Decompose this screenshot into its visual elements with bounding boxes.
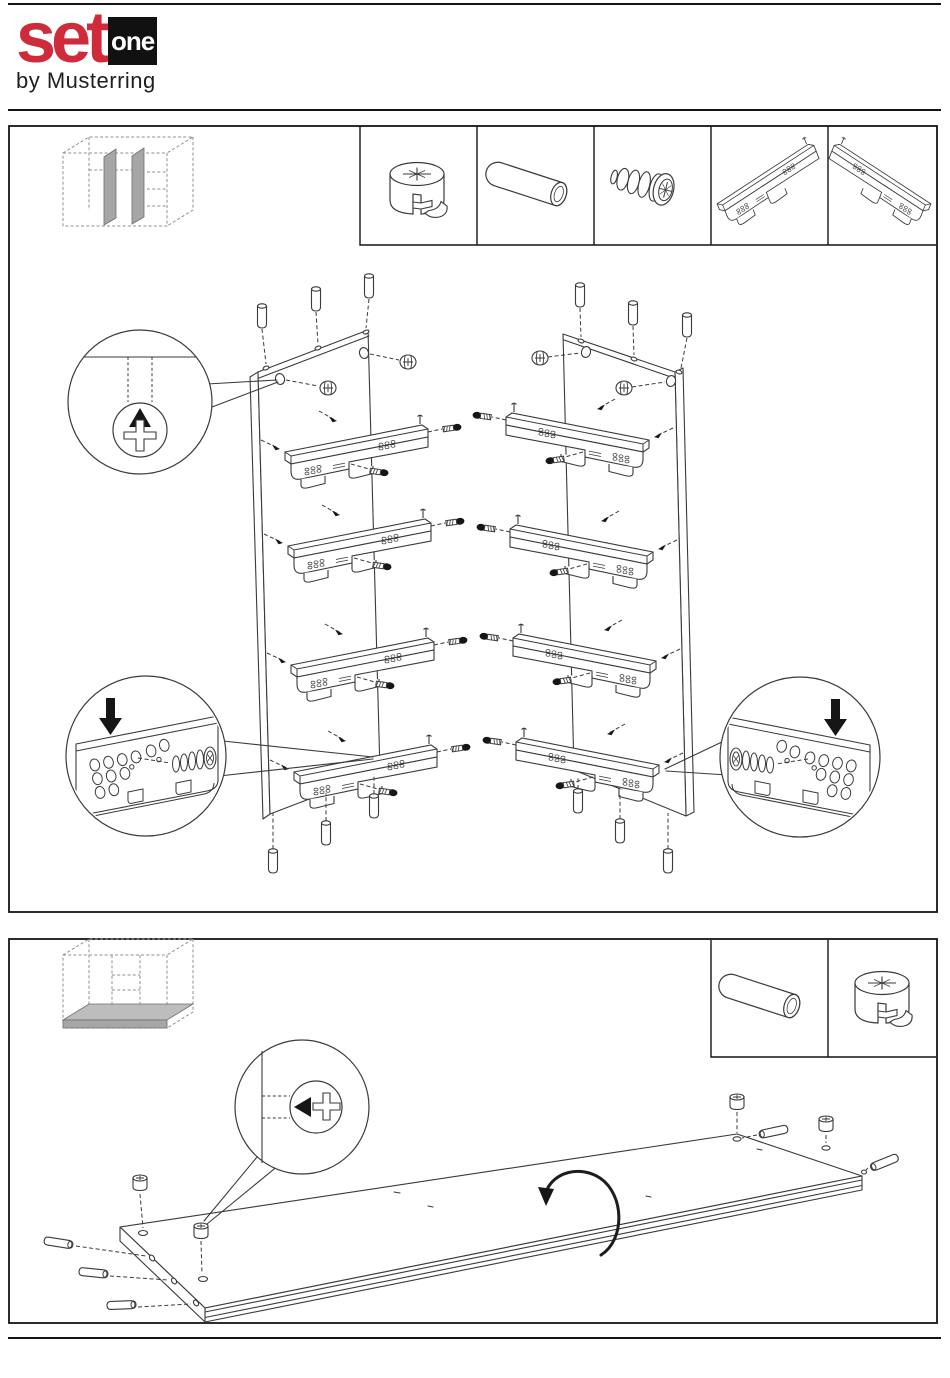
footer-rule <box>8 1337 941 1339</box>
callout-cam-stud-up <box>68 330 278 474</box>
step1-hardware-strip <box>360 126 942 245</box>
wooden-dowel <box>869 1153 899 1171</box>
drawer-slide-left-icon <box>706 135 831 230</box>
wooden-dowel <box>44 1237 74 1249</box>
wooden-dowel-icon <box>716 971 803 1020</box>
highlighted-partition-right <box>132 148 144 224</box>
cam-lock-icon <box>855 972 912 1027</box>
cam-stud <box>133 1175 147 1191</box>
highlighted-bottom-panel <box>63 1004 193 1020</box>
wooden-dowel <box>79 1267 109 1278</box>
wooden-dowel-icon <box>483 159 570 208</box>
right-partition-assembly <box>472 283 694 873</box>
step1-cabinet-thumbnail <box>63 137 193 226</box>
wooden-dowel <box>758 1125 788 1139</box>
step2-cabinet-thumbnail <box>63 939 193 1028</box>
cam-stud <box>819 1116 833 1132</box>
drawer-slide-right-icon <box>817 135 942 230</box>
step2-hardware-strip <box>711 940 936 1057</box>
left-partition-assembly <box>250 274 471 873</box>
cam-stud <box>730 1094 744 1110</box>
euro-screw-icon <box>607 161 677 208</box>
bottom-panel-illustration <box>44 1094 900 1322</box>
cam-stud <box>194 1223 208 1239</box>
callout-slide-screw-right <box>665 677 880 837</box>
wooden-dowel <box>107 1301 136 1310</box>
instruction-page: set one by Musterring <box>0 0 950 1378</box>
highlighted-partition-left <box>104 149 116 225</box>
step1-diagram <box>0 0 950 1378</box>
cam-lock-icon <box>390 163 447 218</box>
